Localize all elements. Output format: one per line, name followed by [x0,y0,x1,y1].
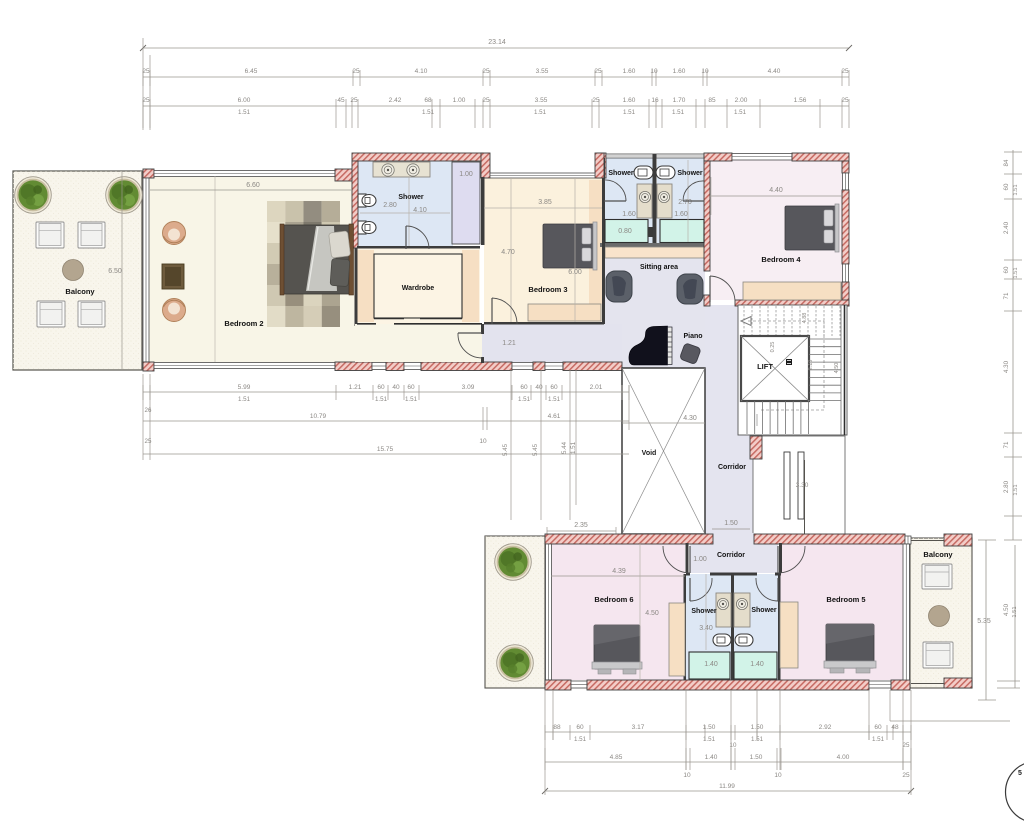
svg-text:1.00: 1.00 [459,171,473,178]
svg-text:10: 10 [774,772,782,779]
svg-text:1.56: 1.56 [794,97,807,104]
svg-text:Shower: Shower [398,194,424,201]
svg-text:3.55: 3.55 [536,68,549,75]
svg-text:2.80: 2.80 [383,202,397,209]
svg-text:10: 10 [479,438,487,445]
svg-text:Shower: Shower [691,608,717,615]
svg-text:Corridor: Corridor [717,552,745,559]
svg-text:1.51: 1.51 [548,396,561,403]
svg-text:Bedroom 6: Bedroom 6 [594,595,633,604]
svg-text:1.00: 1.00 [693,556,707,563]
svg-text:10: 10 [701,68,709,75]
svg-text:1.40: 1.40 [705,754,718,761]
svg-text:Sitting area: Sitting area [640,264,678,271]
svg-text:4.30: 4.30 [1003,360,1010,373]
svg-text:1.60: 1.60 [673,68,686,75]
svg-text:84: 84 [1003,159,1010,166]
svg-text:Piano: Piano [683,333,702,340]
svg-text:0.80: 0.80 [618,228,632,235]
svg-text:25: 25 [145,438,152,445]
svg-text:4.85: 4.85 [610,754,623,761]
svg-text:15.75: 15.75 [377,446,394,453]
svg-text:Bedroom 2: Bedroom 2 [224,319,263,328]
svg-text:25: 25 [592,97,600,104]
svg-text:Bedroom 4: Bedroom 4 [761,255,801,264]
svg-text:23.14: 23.14 [488,39,506,46]
svg-text:4.50: 4.50 [834,363,840,374]
svg-text:60: 60 [874,724,882,731]
svg-text:1.51: 1.51 [1013,484,1019,495]
svg-text:1.50: 1.50 [750,754,763,761]
svg-text:60: 60 [1003,266,1010,273]
svg-text:Void: Void [642,450,657,457]
svg-text:5: 5 [1018,770,1022,777]
svg-text:2.00: 2.00 [735,97,748,104]
svg-text:1.51: 1.51 [672,109,685,116]
svg-text:40: 40 [535,384,543,391]
svg-text:1.51: 1.51 [238,396,251,403]
svg-text:1.51: 1.51 [534,109,547,116]
svg-text:25: 25 [142,97,150,104]
svg-text:60: 60 [520,384,528,391]
svg-text:1.60: 1.60 [674,211,688,218]
svg-text:1.51: 1.51 [375,396,388,403]
svg-text:60: 60 [1003,183,1010,190]
svg-text:Shower: Shower [677,170,703,177]
svg-text:4.39: 4.39 [612,568,626,575]
svg-text:5.35: 5.35 [977,618,991,625]
svg-text:2.40: 2.40 [1003,221,1010,234]
svg-text:25: 25 [352,68,360,75]
svg-text:71: 71 [1003,292,1010,299]
svg-text:Corridor: Corridor [718,464,746,471]
svg-text:1.51: 1.51 [623,109,636,116]
svg-text:10.79: 10.79 [310,413,327,420]
svg-text:2.10: 2.10 [808,360,814,371]
svg-text:2.01: 2.01 [590,384,603,391]
svg-text:16: 16 [651,97,659,104]
svg-text:1.21: 1.21 [349,384,362,391]
svg-text:1.60: 1.60 [623,97,636,104]
svg-text:1.51: 1.51 [734,109,747,116]
svg-text:Wardrobe: Wardrobe [402,285,435,292]
svg-text:25: 25 [350,97,358,104]
svg-text:1.51: 1.51 [872,736,885,743]
svg-text:6.00: 6.00 [238,97,251,104]
svg-text:3.55: 3.55 [535,97,548,104]
svg-text:Bedroom 3: Bedroom 3 [528,285,567,294]
svg-text:2.35: 2.35 [574,522,588,529]
svg-text:48: 48 [891,724,899,731]
svg-text:4.00: 4.00 [837,754,850,761]
svg-text:68: 68 [424,97,432,104]
svg-text:4.50: 4.50 [645,610,659,617]
svg-text:60: 60 [576,724,584,731]
svg-text:1.60: 1.60 [622,211,636,218]
svg-text:88: 88 [553,724,561,731]
svg-text:0.25: 0.25 [770,342,776,353]
svg-text:25: 25 [482,97,490,104]
svg-text:25: 25 [482,68,490,75]
svg-text:11.99: 11.99 [719,783,735,790]
svg-text:1.50: 1.50 [724,520,738,527]
svg-text:1.00: 1.00 [453,97,466,104]
svg-text:1.70: 1.70 [673,97,686,104]
svg-text:1.40: 1.40 [750,661,764,668]
svg-text:25: 25 [902,772,910,779]
svg-text:4.10: 4.10 [413,207,427,214]
svg-text:25: 25 [841,68,849,75]
svg-text:10: 10 [650,68,658,75]
svg-text:1.51: 1.51 [1013,267,1019,278]
svg-text:6.60: 6.60 [246,182,260,189]
svg-text:3.09: 3.09 [462,384,475,391]
svg-text:25: 25 [841,97,849,104]
svg-text:45: 45 [337,97,345,104]
svg-text:Shower: Shower [608,170,634,177]
svg-text:60: 60 [377,384,385,391]
svg-text:4.88: 4.88 [802,313,808,324]
svg-text:Bedroom 5: Bedroom 5 [826,595,865,604]
svg-text:10: 10 [683,772,691,779]
svg-text:1.51: 1.51 [570,441,577,454]
svg-text:1.51: 1.51 [1012,606,1018,617]
svg-text:26: 26 [145,407,152,414]
svg-text:1.51: 1.51 [405,396,418,403]
svg-text:5.45: 5.45 [532,443,539,456]
svg-text:3.30: 3.30 [796,482,809,489]
svg-text:4.50: 4.50 [1003,603,1010,616]
svg-text:1.50: 1.50 [703,724,716,731]
svg-text:5.99: 5.99 [238,384,251,391]
svg-text:60: 60 [550,384,558,391]
svg-text:1.51: 1.51 [1013,184,1019,195]
svg-text:1.51: 1.51 [574,736,587,743]
svg-text:71: 71 [1003,441,1010,448]
svg-text:1.51: 1.51 [238,109,251,116]
svg-text:2.70: 2.70 [678,199,692,206]
svg-text:2.80: 2.80 [1003,480,1010,493]
svg-text:6.50: 6.50 [108,268,122,275]
svg-text:60: 60 [407,384,415,391]
svg-text:4.40: 4.40 [769,187,783,194]
svg-text:1.21: 1.21 [502,340,516,347]
svg-text:25: 25 [142,68,150,75]
svg-text:3.85: 3.85 [538,199,552,206]
svg-text:5.44: 5.44 [561,441,568,454]
svg-text:Shower: Shower [751,607,777,614]
svg-text:3.17: 3.17 [632,724,645,731]
svg-text:6.45: 6.45 [245,68,258,75]
svg-text:1.51: 1.51 [518,396,531,403]
svg-text:4.61: 4.61 [548,413,561,420]
svg-text:1.51: 1.51 [422,109,435,116]
svg-text:6.00: 6.00 [568,269,582,276]
svg-text:LIFT: LIFT [757,362,773,371]
svg-text:Balcony: Balcony [65,287,95,296]
svg-text:Balcony: Balcony [923,550,953,559]
svg-text:1.51: 1.51 [703,736,716,743]
svg-text:4.40: 4.40 [768,68,781,75]
svg-text:40: 40 [392,384,400,391]
svg-text:4.70: 4.70 [501,249,515,256]
svg-text:4.10: 4.10 [415,68,428,75]
svg-text:85: 85 [708,97,716,104]
svg-text:25: 25 [594,68,602,75]
svg-text:25: 25 [903,742,910,749]
svg-text:5.45: 5.45 [502,443,509,456]
svg-text:4.30: 4.30 [683,415,697,422]
svg-text:2.42: 2.42 [389,97,402,104]
svg-text:1.40: 1.40 [704,661,718,668]
svg-text:2.92: 2.92 [819,724,832,731]
svg-text:1.60: 1.60 [623,68,636,75]
